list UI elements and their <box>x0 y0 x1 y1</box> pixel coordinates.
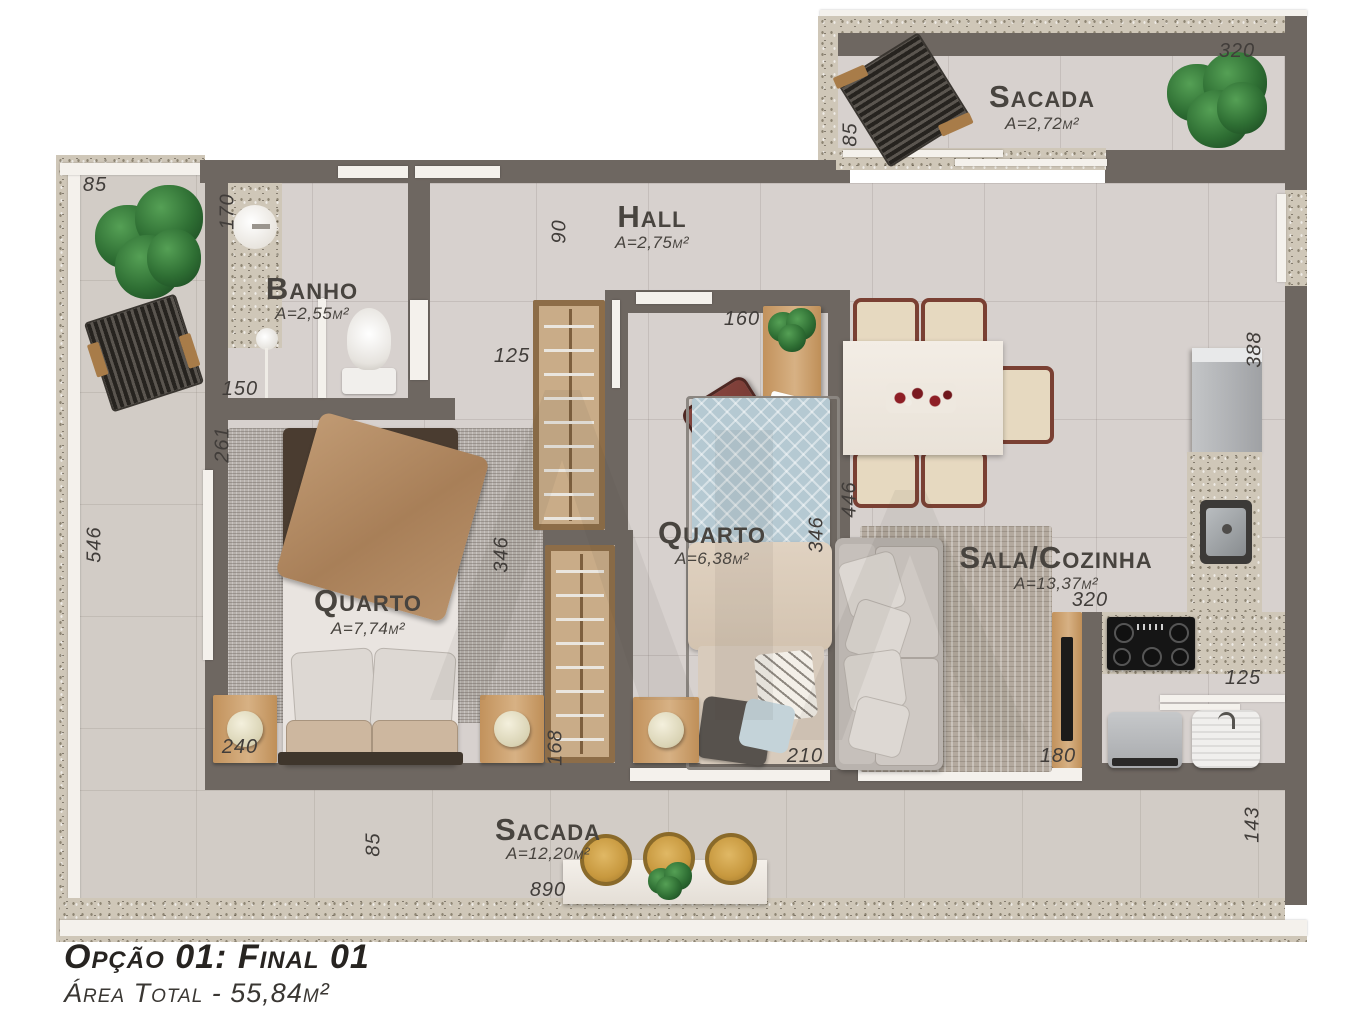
dim-sala-right: 388 <box>1244 318 1267 382</box>
dim-balcony-top: 85 <box>63 174 127 197</box>
label-sacada-bottom: Sacada <box>495 812 601 848</box>
dim-hall-width: 90 <box>549 200 572 264</box>
dim-quarto2-top: 160 <box>710 308 774 331</box>
sliding-door-sacada-top-a <box>843 150 1003 157</box>
floor-plan: Sacada A=2,72m² Hall A=2,75m² Banho A=2,… <box>0 0 1366 1036</box>
area-hall: A=2,75m² <box>615 233 689 253</box>
window-right-wall <box>1285 190 1307 286</box>
dim-sacada-right: 143 <box>1242 793 1265 857</box>
kitchen-window-a <box>1160 695 1285 702</box>
dim-quarto1-length: 346 <box>491 523 514 587</box>
dim-quarto1-top: 261 <box>212 413 235 477</box>
dim-wardrobe-top: 125 <box>480 345 544 368</box>
dim-sacada-top-width: 320 <box>1205 40 1269 63</box>
dim-wardrobe-bottom: 168 <box>545 716 568 780</box>
area-quarto1: A=7,74m² <box>331 619 405 639</box>
wall-sacada-divider <box>1105 150 1285 183</box>
dim-quarto2-length: 346 <box>806 503 829 567</box>
plant-sacada-top <box>1165 52 1270 152</box>
cooktop-knobs <box>1137 624 1165 630</box>
wall-top-main <box>200 160 850 183</box>
entry-door <box>415 166 500 178</box>
parapet-sacada-left <box>818 16 838 162</box>
window-quarto1 <box>203 470 213 660</box>
dim-banho-width: 170 <box>217 180 240 244</box>
window-banho <box>338 166 408 178</box>
label-sacada-top: Sacada <box>989 79 1095 115</box>
railing-left <box>68 162 80 932</box>
dim-sacada-top-depth: 85 <box>840 103 863 167</box>
parapet-top <box>820 16 1307 34</box>
page-title: Opção 01: Final 01 <box>64 938 370 977</box>
kitchen-sink-faucet <box>1222 524 1232 534</box>
railing-bottom <box>60 920 1307 936</box>
sliding-door-sacada-top-b <box>955 159 1107 166</box>
dim-tv-panel: 180 <box>1026 745 1090 768</box>
cooktop <box>1107 617 1195 670</box>
pouf-3 <box>705 833 757 885</box>
dim-banho-length: 150 <box>208 378 272 401</box>
dim-tv-wall: 320 <box>1058 589 1122 612</box>
tank-faucet <box>1218 712 1235 729</box>
dim-sacada-width: 890 <box>516 879 580 902</box>
dim-balcony-length: 546 <box>84 513 107 577</box>
tv <box>1061 637 1073 741</box>
washing-machine-door <box>1112 758 1178 766</box>
label-banho: Banho <box>266 271 358 307</box>
area-banho: A=2,55m² <box>275 304 349 324</box>
dim-quarto1-width: 240 <box>208 736 272 759</box>
label-hall: Hall <box>617 199 686 235</box>
window-sill-right <box>1277 194 1286 282</box>
shower-head <box>256 328 278 350</box>
dim-sacada-depth: 85 <box>363 813 386 877</box>
wall-right <box>1285 16 1307 905</box>
label-quarto2: Quarto <box>658 515 766 551</box>
area-sacada-top: A=2,72m² <box>1005 114 1079 134</box>
dim-kitchen-window: 125 <box>1211 667 1275 690</box>
area-sacada-bottom: A=12,20m² <box>506 844 590 864</box>
label-quarto1: Quarto <box>314 583 422 619</box>
dim-sala-length: 446 <box>839 468 862 532</box>
banho-faucet <box>252 224 270 229</box>
parapet-top-left <box>56 155 205 163</box>
label-sala-cozinha: Sala/Cozinha <box>959 540 1152 576</box>
dim-quarto2-width: 210 <box>773 745 837 768</box>
area-quarto2: A=6,38m² <box>675 549 749 569</box>
plant-bench <box>648 862 692 902</box>
page-subtitle: Área Total - 55,84m² <box>64 978 330 1009</box>
plant-balcony-left <box>95 185 205 315</box>
